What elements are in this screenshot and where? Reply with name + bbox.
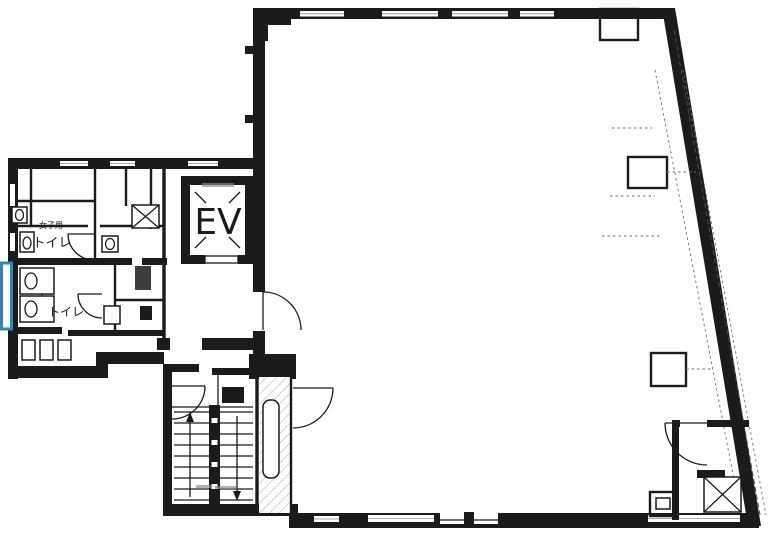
hall-walls bbox=[157, 338, 258, 350]
column-mid-right bbox=[628, 157, 667, 188]
toilet-lower-fixtures bbox=[20, 268, 152, 360]
wall-block bbox=[249, 354, 296, 379]
floor-plan-scan: EV bbox=[0, 0, 773, 533]
elevator-label: EV bbox=[194, 202, 242, 243]
elevator-door-sill bbox=[205, 256, 238, 263]
elevator-shaft: EV bbox=[181, 176, 254, 264]
toilet-lower-label: トイレ bbox=[48, 305, 84, 319]
main-room-left-wall bbox=[253, 8, 265, 292]
shaft-x-box bbox=[704, 477, 741, 512]
toilet-upper-label: トイレ bbox=[32, 236, 71, 251]
blue-highlight-marker bbox=[2, 263, 12, 329]
stair-side-corridor bbox=[257, 376, 291, 513]
column-lower-right bbox=[651, 353, 686, 386]
toilet-upper-sublabel: 女子用 bbox=[39, 220, 63, 230]
duct-shaft-x-box bbox=[132, 205, 159, 228]
stair-landing-fixture bbox=[222, 387, 244, 403]
corridor-rail bbox=[263, 400, 279, 478]
